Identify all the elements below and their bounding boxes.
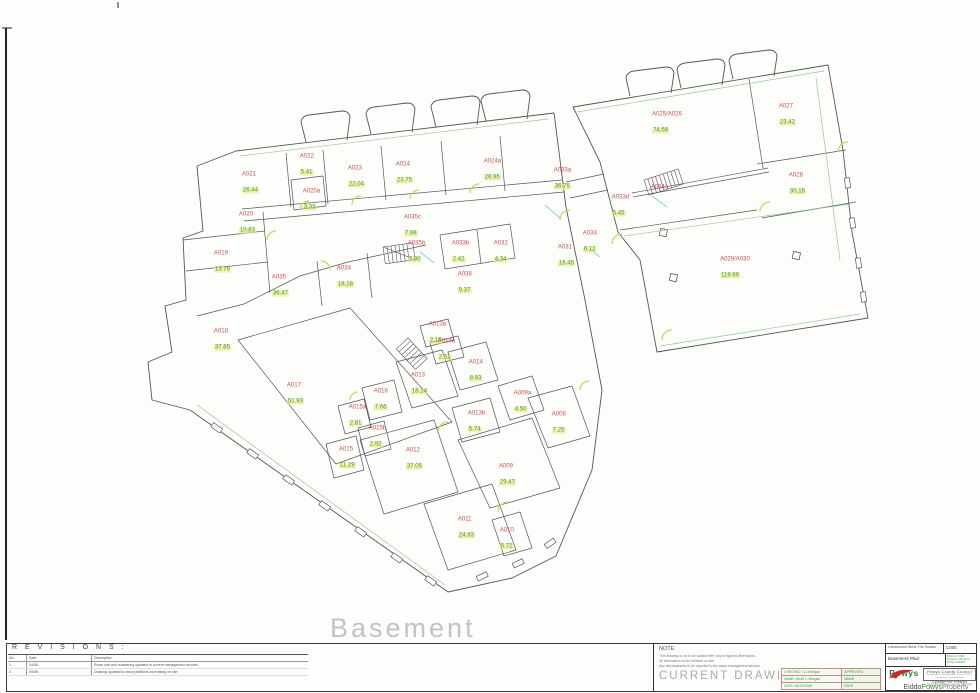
room-label: A020 10.83 bbox=[239, 212, 256, 237]
room-area: 29.47 bbox=[499, 479, 516, 486]
room-label: A027 23.42 bbox=[779, 104, 796, 129]
brand-property: Property bbox=[942, 684, 968, 691]
room-code: A014a bbox=[438, 339, 455, 346]
room-label: A029/A030 119.69 bbox=[720, 257, 750, 282]
room-area: 26.95 bbox=[484, 174, 501, 181]
revision-date: 04/08 bbox=[27, 662, 92, 668]
brand-eiddo: Eiddo bbox=[904, 684, 922, 691]
room-area: 5.45 bbox=[612, 210, 626, 217]
title-block-council-row: Powys Powys County Council Neuadd y Sir,… bbox=[886, 667, 976, 692]
revision-no: 1 bbox=[8, 662, 27, 668]
room-code: A021 bbox=[242, 172, 259, 179]
room-code: A012 bbox=[406, 448, 423, 455]
revision-row: 2 09/08 Drawing updated to show partitio… bbox=[8, 669, 308, 676]
room-label: A024a 26.95 bbox=[484, 159, 501, 184]
room-code: A008 bbox=[552, 412, 566, 419]
revisions-rows: 1 04/08 Room use and numbering updated t… bbox=[8, 662, 308, 676]
room-area: 22.04 bbox=[348, 181, 365, 188]
room-label: A013b 5.74 bbox=[468, 411, 485, 436]
revisions-col-date: Date bbox=[27, 655, 92, 661]
room-area: 51.93 bbox=[287, 398, 304, 405]
drawing-meta-line: DATE: 10/2008 bbox=[947, 661, 975, 664]
room-area: 37.85 bbox=[214, 344, 231, 351]
room-code: A027 bbox=[779, 104, 796, 111]
note-box: NOTE: This drawing is not to be scaled r… bbox=[653, 643, 886, 691]
note-lines: This drawing is not to be scaled refer o… bbox=[659, 654, 760, 669]
bay-windows-right-wing bbox=[626, 50, 777, 96]
sheet-edge-marks bbox=[2, 2, 118, 640]
sign-off-right: NAME bbox=[842, 676, 880, 682]
room-area: 7.30 bbox=[408, 256, 422, 263]
room-area: 8.93 bbox=[469, 375, 483, 382]
sheet-number: C005 bbox=[943, 644, 976, 653]
sign-off-left: DATE: 08/10/2008 bbox=[782, 683, 842, 689]
room-code: A033b bbox=[452, 241, 469, 248]
room-code: A014 bbox=[469, 360, 483, 367]
border-sheet-left-bottom bbox=[6, 643, 7, 691]
sign-off-row: CHECKED: S.J.Morgan APPROVED bbox=[782, 669, 880, 676]
room-label: A033a 36.75 bbox=[554, 168, 571, 193]
room-code: A035c bbox=[404, 215, 421, 222]
room-area: 18.18 bbox=[337, 281, 354, 288]
room-area: 23.42 bbox=[779, 119, 796, 126]
room-code: A015 bbox=[339, 447, 356, 454]
room-label: A034 18.18 bbox=[337, 266, 354, 291]
room-code: A009 bbox=[499, 464, 516, 471]
room-area: 7.98 bbox=[404, 230, 418, 237]
room-area: 2.51 bbox=[438, 354, 452, 361]
sign-off-left: CHECKED: S.J.Morgan bbox=[782, 669, 842, 675]
room-code: A010 bbox=[500, 528, 514, 535]
room-code: A035 bbox=[272, 275, 289, 282]
room-code: A033a bbox=[554, 168, 571, 175]
room-code: A038 bbox=[458, 272, 472, 279]
room-code: A019 bbox=[214, 251, 231, 258]
room-area: 36.47 bbox=[272, 290, 289, 297]
project-name: Llandrindod Wells The Gwalia bbox=[886, 644, 943, 653]
room-area: 9.37 bbox=[458, 287, 472, 294]
room-code: A033 bbox=[583, 231, 597, 238]
drawing-meta: DRG No: C005SCALE 1:100 @ A3DATE: 10/200… bbox=[945, 654, 976, 666]
room-code: A023 bbox=[348, 166, 365, 173]
room-label: A013 18.14 bbox=[411, 373, 428, 398]
revisions-col-desc: Description: bbox=[92, 655, 308, 661]
room-area: 24.93 bbox=[458, 532, 475, 539]
room-label: A025/A026 74.56 bbox=[652, 112, 682, 137]
drawing-sheet: A021 26.44 A022 5.41 A023 22.04 A020a 3.… bbox=[0, 0, 980, 693]
revision-desc: Room use and numbering updated to curren… bbox=[92, 662, 308, 668]
room-label: A033 6.12 bbox=[583, 231, 597, 256]
plan-title: Basement bbox=[330, 613, 476, 644]
room-label: A015 11.29 bbox=[339, 447, 356, 472]
border-sheet-bottom bbox=[6, 691, 977, 692]
room-code: A016 bbox=[374, 389, 388, 396]
room-area: 2.42 bbox=[452, 256, 466, 263]
room-code: A028 bbox=[789, 173, 806, 180]
room-area: 23.75 bbox=[396, 177, 413, 184]
room-area: 3.33 bbox=[303, 204, 317, 211]
room-area: 2.81 bbox=[349, 420, 363, 427]
room-code: A013a bbox=[429, 322, 446, 329]
room-area: 7.25 bbox=[552, 427, 566, 434]
room-area: 2.92 bbox=[369, 441, 383, 448]
room-label: A034a bbox=[651, 185, 668, 192]
room-label: A019 13.76 bbox=[214, 251, 231, 276]
sign-off-row: NAME: Geoff L. Morgan NAME bbox=[782, 676, 880, 683]
revision-row: 1 04/08 Room use and numbering updated t… bbox=[8, 662, 308, 669]
room-code: A034a bbox=[651, 185, 668, 192]
room-area: 10.83 bbox=[239, 227, 256, 234]
room-label: A023 22.04 bbox=[348, 166, 365, 191]
revision-date: 09/08 bbox=[27, 669, 92, 675]
revisions-table: No: Date Description: 1 04/08 Room use a… bbox=[8, 654, 308, 676]
room-area: 4.34 bbox=[494, 256, 508, 263]
room-label: A035 36.47 bbox=[272, 275, 289, 300]
revision-desc: Drawing updated to show partitions as ex… bbox=[92, 669, 308, 675]
room-code: A020 bbox=[239, 212, 256, 219]
revisions-header: No: Date Description: bbox=[8, 654, 308, 662]
room-label: A015b 2.92 bbox=[369, 426, 386, 451]
room-area: 36.75 bbox=[554, 183, 571, 190]
room-area: 11.29 bbox=[339, 462, 356, 469]
room-label: A017 51.93 bbox=[287, 383, 304, 408]
room-area: 5.41 bbox=[300, 169, 314, 176]
room-label: A033d 5.45 bbox=[612, 195, 629, 220]
bay-windows-upper bbox=[301, 90, 530, 142]
room-label: A009 29.47 bbox=[499, 464, 516, 489]
room-area: 26.44 bbox=[242, 187, 259, 194]
room-label: A020a 3.33 bbox=[303, 189, 320, 214]
room-code: A018 bbox=[214, 329, 231, 336]
note-label: NOTE: bbox=[659, 646, 676, 652]
room-area: 4.50 bbox=[514, 406, 528, 413]
sign-off-left: NAME: Geoff L. Morgan bbox=[782, 676, 842, 682]
title-block-drawing-row: Basement Plan DRG No: C005SCALE 1:100 @ … bbox=[886, 654, 976, 667]
room-code: A017 bbox=[287, 383, 304, 390]
room-label: A035b 7.30 bbox=[408, 241, 425, 266]
room-area: 30.16 bbox=[789, 188, 806, 195]
room-code: A020a bbox=[303, 189, 320, 196]
room-code: A013b bbox=[468, 411, 485, 418]
council-box: Powys County Council Neuadd y Sir, Lland… bbox=[923, 668, 976, 681]
room-code: A022 bbox=[300, 154, 314, 161]
room-area: 119.69 bbox=[720, 272, 740, 279]
room-label: A012 37.05 bbox=[406, 448, 423, 473]
survey-accent-lines bbox=[197, 71, 860, 585]
room-label: A021 26.44 bbox=[242, 172, 259, 197]
room-label: A018 37.85 bbox=[214, 329, 231, 354]
room-label: A038 9.37 bbox=[458, 272, 472, 297]
room-area: 13.76 bbox=[214, 266, 231, 273]
room-code: A009a bbox=[514, 391, 531, 398]
revision-no: 2 bbox=[8, 669, 27, 675]
sign-off-table: CHECKED: S.J.Morgan APPROVED NAME: Geoff… bbox=[781, 668, 881, 690]
room-code: A025/A026 bbox=[652, 112, 682, 119]
title-block-project-row: Llandrindod Wells The Gwalia C005 bbox=[886, 644, 976, 654]
room-label: A010 5.72 bbox=[500, 528, 514, 553]
room-code: A013 bbox=[411, 373, 428, 380]
room-area: 5.72 bbox=[500, 543, 514, 550]
room-label: A024 23.75 bbox=[396, 162, 413, 187]
drawing-title: Basement Plan bbox=[886, 654, 945, 666]
room-label: A022 5.41 bbox=[300, 154, 314, 179]
room-label: A032 4.34 bbox=[494, 241, 508, 266]
room-area: 7.66 bbox=[374, 404, 388, 411]
room-area: 18.14 bbox=[411, 388, 428, 395]
powys-dragon-icon bbox=[887, 668, 917, 680]
sign-off-row: DATE: 08/10/2008 DATE bbox=[782, 683, 880, 689]
floor-plan bbox=[0, 0, 980, 693]
room-code: A031 bbox=[558, 245, 575, 252]
room-code: A032 bbox=[494, 241, 508, 248]
revisions-col-no: No: bbox=[8, 655, 27, 661]
interior-walls bbox=[183, 79, 856, 570]
room-label: A009a 4.50 bbox=[514, 391, 531, 416]
room-label: A014 8.93 bbox=[469, 360, 483, 385]
room-label: A008 7.25 bbox=[552, 412, 566, 437]
room-label: A031 16.45 bbox=[558, 245, 575, 270]
room-area: 6.12 bbox=[583, 246, 597, 253]
sign-off-right: APPROVED bbox=[842, 669, 880, 675]
title-block: Llandrindod Wells The Gwalia C005 Baseme… bbox=[885, 643, 977, 691]
room-code: A015a bbox=[349, 405, 366, 412]
room-code: A015b bbox=[369, 426, 386, 433]
sign-off-right: DATE bbox=[842, 683, 880, 689]
room-label: A015a 2.81 bbox=[349, 405, 366, 430]
room-code: A024 bbox=[396, 162, 413, 169]
room-label: A035c 7.98 bbox=[404, 215, 421, 240]
room-area: 5.74 bbox=[468, 426, 482, 433]
room-code: A033d bbox=[612, 195, 629, 202]
room-label: A016 7.66 bbox=[374, 389, 388, 414]
brand-powys: Powys bbox=[921, 684, 942, 691]
room-label: A033b 2.42 bbox=[452, 241, 469, 266]
room-label: A011 24.93 bbox=[458, 517, 475, 542]
room-code: A034 bbox=[337, 266, 354, 273]
room-area: 37.05 bbox=[406, 463, 423, 470]
room-area: 16.45 bbox=[558, 260, 575, 267]
note-line: Any discrepancies to be reported to the … bbox=[659, 664, 760, 669]
room-area: 74.56 bbox=[652, 127, 669, 134]
room-code: A011 bbox=[458, 517, 475, 524]
eiddo-powys-property-brand: EiddoPowysProperty bbox=[894, 684, 978, 691]
room-label: A014a 2.51 bbox=[438, 339, 455, 364]
room-code: A035b bbox=[408, 241, 425, 248]
window-ticks bbox=[211, 178, 867, 586]
room-label: A028 30.16 bbox=[789, 173, 806, 198]
room-code: A029/A030 bbox=[720, 257, 750, 264]
room-code: A024a bbox=[484, 159, 501, 166]
revisions-title: R E V I S I O N S : bbox=[12, 644, 127, 651]
